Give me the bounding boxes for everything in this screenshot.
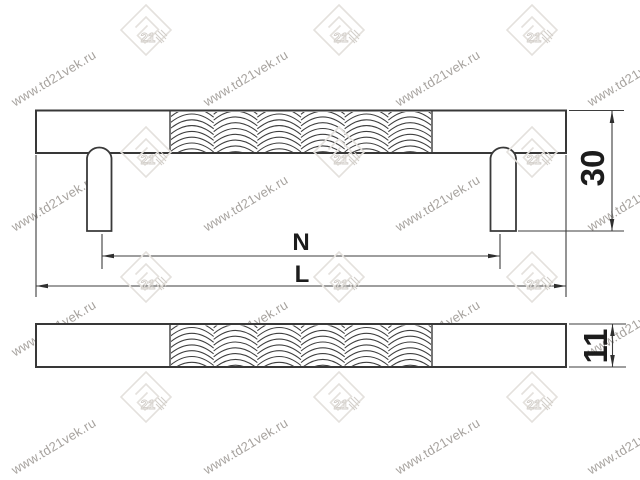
logo-21-watermark: [121, 5, 171, 55]
logo-21-watermark: [507, 252, 557, 302]
logo-21-watermark: [314, 252, 364, 302]
logo-21-watermark: [314, 5, 364, 55]
logo-21-watermark: [507, 5, 557, 55]
logo-21-watermark: [121, 372, 171, 422]
watermark-logo-layer: 21: [0, 0, 640, 480]
logo-21-watermark: [121, 127, 171, 177]
logo-watermarks: [121, 5, 557, 422]
logo-21-watermark: [121, 252, 171, 302]
logo-21-watermark: [507, 127, 557, 177]
technical-drawing-canvas: www.td21vek.ruwww.td21vek.ruwww.td21vek.…: [0, 0, 640, 480]
logo-21-watermark: [314, 372, 364, 422]
logo-21-watermark: [314, 127, 364, 177]
logo-21-watermark: [507, 372, 557, 422]
